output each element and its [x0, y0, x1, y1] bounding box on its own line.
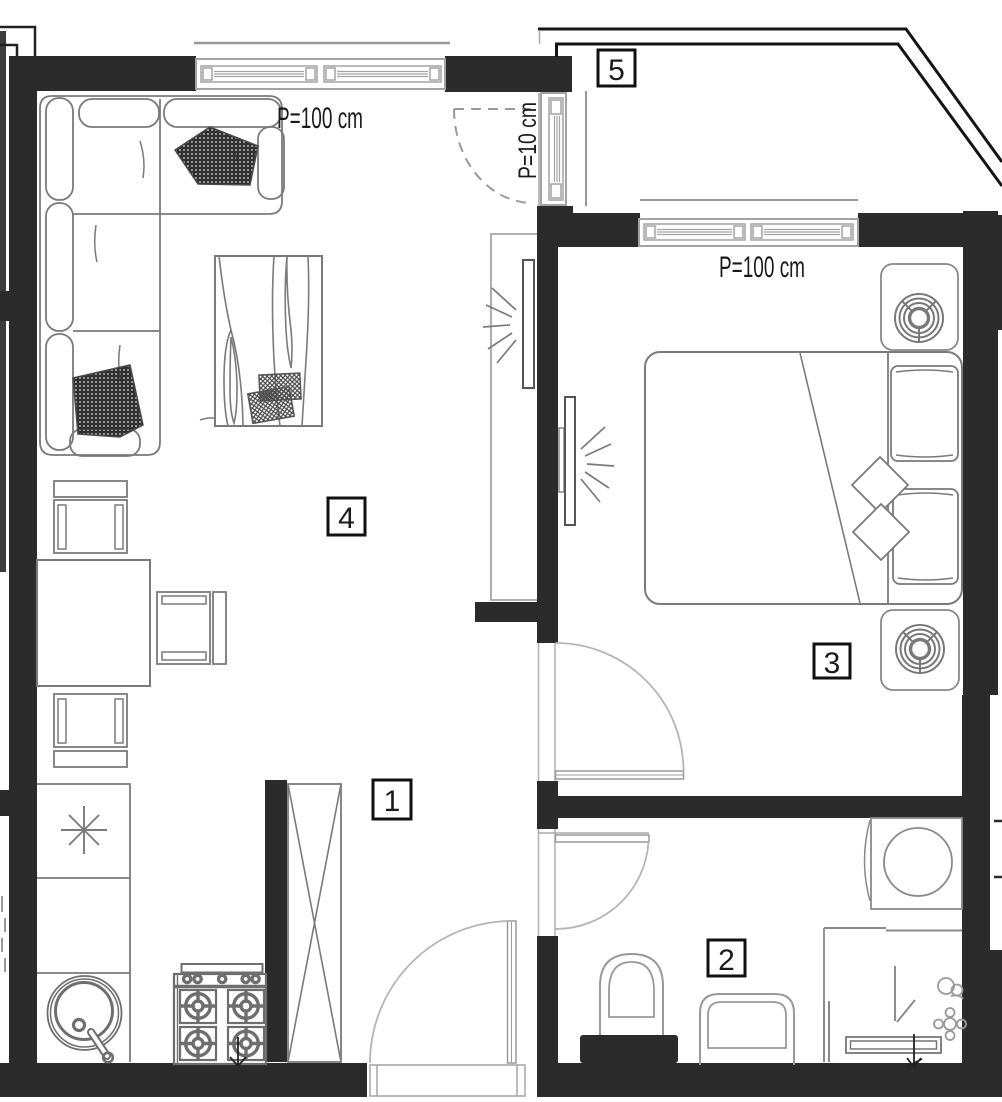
svg-text:P=10 cm: P=10 cm — [514, 102, 542, 179]
svg-text:4: 4 — [338, 502, 355, 535]
svg-text:5: 5 — [608, 54, 625, 87]
svg-text:P=100 cm: P=100 cm — [719, 251, 805, 284]
svg-text:P=100 cm: P=100 cm — [277, 102, 363, 135]
svg-text:3: 3 — [824, 647, 841, 680]
svg-text:2: 2 — [718, 944, 735, 977]
svg-text:1: 1 — [384, 785, 401, 818]
